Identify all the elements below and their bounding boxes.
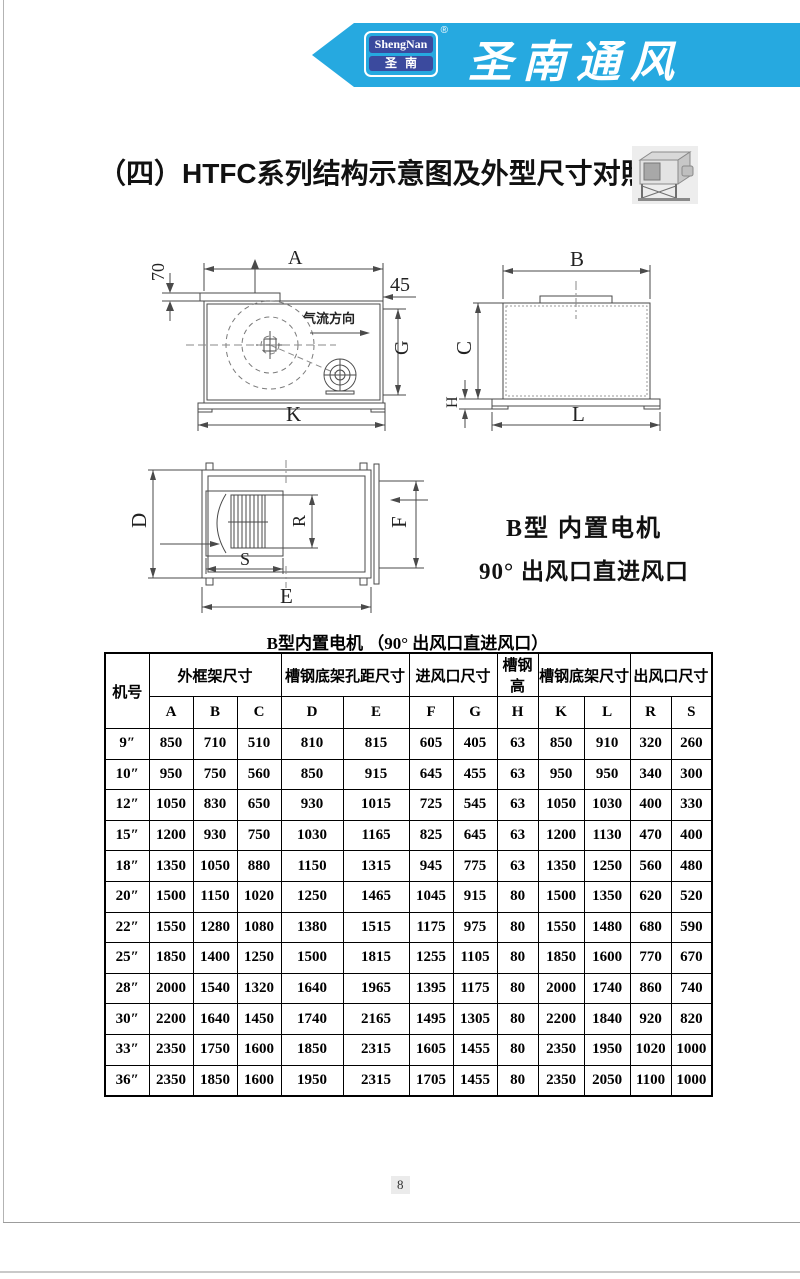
dimension-cell: 1815	[343, 943, 409, 974]
diagram-front-view: B C H L	[445, 235, 745, 440]
dimension-cell: 930	[193, 820, 237, 851]
dimension-cell: 1500	[538, 881, 584, 912]
dimension-cell: 545	[453, 790, 497, 821]
diagram-plan-view: R S D F E	[128, 438, 448, 633]
brand-name: 圣南通风	[468, 26, 788, 90]
page-border-bottom	[3, 1222, 800, 1223]
dimension-cell: 80	[497, 1004, 538, 1035]
letter-header: D	[281, 697, 343, 729]
letter-header: K	[538, 697, 584, 729]
dimension-cell: 510	[237, 729, 281, 760]
table-row: 33″2350175016001850231516051455802350195…	[105, 1034, 712, 1065]
table-row: 28″2000154013201640196513951175802000174…	[105, 973, 712, 1004]
dimension-cell: 80	[497, 973, 538, 1004]
dimension-cell: 1950	[281, 1065, 343, 1096]
dimension-cell: 950	[149, 759, 193, 790]
letter-header: L	[584, 697, 630, 729]
dim-label-c: C	[452, 341, 476, 355]
dimension-cell: 63	[497, 851, 538, 882]
dimension-cell: 400	[630, 790, 671, 821]
machine-size-cell: 22″	[105, 912, 149, 943]
machine-size-cell: 20″	[105, 881, 149, 912]
dimension-cell: 455	[453, 759, 497, 790]
letter-header: E	[343, 697, 409, 729]
dim-label-r: R	[289, 515, 309, 527]
group-header-base-holes: 槽钢底架孔距尺寸	[281, 653, 409, 697]
letter-header: R	[630, 697, 671, 729]
dimension-cell: 1640	[193, 1004, 237, 1035]
dimension-cell: 1200	[149, 820, 193, 851]
table-row: 10″95075056085091564545563950950340300	[105, 759, 712, 790]
dimension-cell: 1050	[538, 790, 584, 821]
dimension-cell: 1255	[409, 943, 453, 974]
dimension-cell: 63	[497, 759, 538, 790]
dim-label-d: D	[128, 513, 151, 528]
dimension-cell: 1175	[409, 912, 453, 943]
dimension-cell: 1515	[343, 912, 409, 943]
dimension-cell: 1950	[584, 1034, 630, 1065]
dimension-cell: 950	[584, 759, 630, 790]
dimension-cell: 63	[497, 820, 538, 851]
letter-header: B	[193, 697, 237, 729]
dimension-cell: 1050	[193, 851, 237, 882]
dimension-cell: 2315	[343, 1065, 409, 1096]
dimension-cell: 2350	[149, 1065, 193, 1096]
machine-size-cell: 15″	[105, 820, 149, 851]
dim-label-h: H	[445, 396, 461, 408]
dimension-cell: 880	[237, 851, 281, 882]
dimension-cell: 2315	[343, 1034, 409, 1065]
dimension-cell: 320	[630, 729, 671, 760]
airflow-label: 气流方向	[303, 311, 355, 326]
dimension-cell: 470	[630, 820, 671, 851]
dimension-cell: 1395	[409, 973, 453, 1004]
dimension-cell: 1175	[453, 973, 497, 1004]
brand-logo: ShengNan 圣南 ®	[364, 31, 438, 77]
dimension-cell: 330	[671, 790, 712, 821]
dimension-cell: 620	[630, 881, 671, 912]
dimension-cell: 2165	[343, 1004, 409, 1035]
dim-label-g: G	[391, 341, 413, 355]
page-border-left	[3, 0, 4, 1222]
dim-label-e: E	[280, 584, 293, 608]
dimension-cell: 1600	[584, 943, 630, 974]
dimension-cell: 1455	[453, 1065, 497, 1096]
group-header-frame: 外框架尺寸	[149, 653, 281, 697]
machine-size-cell: 18″	[105, 851, 149, 882]
dimension-cell: 2350	[538, 1034, 584, 1065]
dimension-cell: 1600	[237, 1065, 281, 1096]
dimension-cell: 740	[671, 973, 712, 1004]
dimension-cell: 1600	[237, 1034, 281, 1065]
dimension-cell: 560	[237, 759, 281, 790]
dimension-cell: 1550	[538, 912, 584, 943]
dimension-cell: 725	[409, 790, 453, 821]
table-row: 15″1200930750103011658256456312001130470…	[105, 820, 712, 851]
dimension-cell: 1850	[149, 943, 193, 974]
dimension-cell: 1050	[149, 790, 193, 821]
table-body: 9″8507105108108156054056385091032026010″…	[105, 729, 712, 1096]
dimension-cell: 915	[453, 881, 497, 912]
dim-label-l: L	[572, 402, 585, 426]
dimension-cell: 820	[671, 1004, 712, 1035]
machine-size-cell: 28″	[105, 973, 149, 1004]
machine-size-cell: 25″	[105, 943, 149, 974]
machine-size-cell: 10″	[105, 759, 149, 790]
dimension-cell: 850	[281, 759, 343, 790]
dimension-cell: 825	[409, 820, 453, 851]
dimension-cell: 300	[671, 759, 712, 790]
dimension-cell: 830	[193, 790, 237, 821]
dimension-cell: 1500	[281, 943, 343, 974]
dimension-cell: 645	[409, 759, 453, 790]
dimension-cell: 400	[671, 820, 712, 851]
dimension-cell: 80	[497, 943, 538, 974]
dimension-cell: 560	[630, 851, 671, 882]
dimension-cell: 1740	[281, 1004, 343, 1035]
dimension-cell: 1280	[193, 912, 237, 943]
dimension-cell: 605	[409, 729, 453, 760]
letter-header: C	[237, 697, 281, 729]
dimension-cell: 1150	[281, 851, 343, 882]
dimension-cell: 340	[630, 759, 671, 790]
dimension-cell: 1045	[409, 881, 453, 912]
dim-label-b: B	[570, 247, 584, 271]
dimension-cell: 1605	[409, 1034, 453, 1065]
group-header-inlet: 进风口尺寸	[409, 653, 497, 697]
letter-header-row: A B C D E F G H K L R S	[105, 697, 712, 729]
dimension-cell: 945	[409, 851, 453, 882]
diagram-side-view: A 70 45 G K 气流方向	[140, 235, 450, 440]
dimension-cell: 1305	[453, 1004, 497, 1035]
dimension-cell: 1315	[343, 851, 409, 882]
dimension-cell: 1000	[671, 1065, 712, 1096]
dimension-cell: 1200	[538, 820, 584, 851]
dimension-cell: 810	[281, 729, 343, 760]
dimension-cell: 1250	[237, 943, 281, 974]
dimension-cell: 1350	[538, 851, 584, 882]
table-row: 9″85071051081081560540563850910320260	[105, 729, 712, 760]
dimension-cell: 920	[630, 1004, 671, 1035]
dimension-cell: 80	[497, 881, 538, 912]
dimension-table: 机号 外框架尺寸 槽钢底架孔距尺寸 进风口尺寸 槽钢高 槽钢底架尺寸 出风口尺寸…	[104, 652, 713, 1097]
dimension-cell: 1850	[281, 1034, 343, 1065]
dimension-cell: 860	[630, 973, 671, 1004]
dimension-cell: 1480	[584, 912, 630, 943]
letter-header: A	[149, 697, 193, 729]
dim-label-f: F	[387, 516, 411, 528]
logo-text-bottom: 圣南	[369, 56, 433, 71]
dimension-cell: 1030	[281, 820, 343, 851]
dimension-cell: 80	[497, 1034, 538, 1065]
dimension-cell: 590	[671, 912, 712, 943]
dimension-cell: 2000	[538, 973, 584, 1004]
table-row: 25″1850140012501500181512551105801850160…	[105, 943, 712, 974]
dimension-cell: 1400	[193, 943, 237, 974]
dimension-cell: 405	[453, 729, 497, 760]
dimension-cell: 750	[237, 820, 281, 851]
dimension-cell: 1495	[409, 1004, 453, 1035]
type-note-line2: 90° 出风口直进风口	[450, 552, 718, 586]
dimension-cell: 680	[630, 912, 671, 943]
product-thumbnail	[632, 146, 698, 204]
dimension-cell: 910	[584, 729, 630, 760]
dimension-cell: 1850	[193, 1065, 237, 1096]
footer-rule	[0, 1271, 800, 1273]
dimension-cell: 1165	[343, 820, 409, 851]
dimension-cell: 1500	[149, 881, 193, 912]
dimension-cell: 1020	[237, 881, 281, 912]
dimension-cell: 645	[453, 820, 497, 851]
dimension-cell: 815	[343, 729, 409, 760]
dim-label-70: 70	[148, 263, 168, 281]
dimension-cell: 1540	[193, 973, 237, 1004]
dimension-cell: 480	[671, 851, 712, 882]
dimension-cell: 2200	[538, 1004, 584, 1035]
dimension-cell: 1105	[453, 943, 497, 974]
dimension-cell: 950	[538, 759, 584, 790]
dimension-cell: 1550	[149, 912, 193, 943]
table-row: 18″1350105088011501315945775631350125056…	[105, 851, 712, 882]
dimension-cell: 1840	[584, 1004, 630, 1035]
dimension-cell: 1150	[193, 881, 237, 912]
machine-size-cell: 33″	[105, 1034, 149, 1065]
dimension-cell: 1455	[453, 1034, 497, 1065]
dimension-cell: 2000	[149, 973, 193, 1004]
dimension-cell: 1465	[343, 881, 409, 912]
table-title: B型内置电机 （90° 出风口直进风口）	[104, 629, 711, 654]
dimension-cell: 1100	[630, 1065, 671, 1096]
dimension-cell: 2200	[149, 1004, 193, 1035]
dimension-cell: 1350	[149, 851, 193, 882]
dimension-cell: 63	[497, 790, 538, 821]
dimension-cell: 1015	[343, 790, 409, 821]
dimension-cell: 1640	[281, 973, 343, 1004]
dimension-cell: 1320	[237, 973, 281, 1004]
dimension-cell: 930	[281, 790, 343, 821]
table-row: 20″1500115010201250146510459158015001350…	[105, 881, 712, 912]
dimension-cell: 260	[671, 729, 712, 760]
group-header-channel-height: 槽钢高	[497, 653, 538, 697]
letter-header: F	[409, 697, 453, 729]
dimension-cell: 770	[630, 943, 671, 974]
dimension-cell: 1750	[193, 1034, 237, 1065]
dim-label-s: S	[240, 549, 250, 569]
table-row: 12″1050830650930101572554563105010304003…	[105, 790, 712, 821]
dimension-cell: 850	[149, 729, 193, 760]
dimension-cell: 2050	[584, 1065, 630, 1096]
dimension-cell: 750	[193, 759, 237, 790]
machine-col-header: 机号	[105, 653, 149, 729]
logo-text-top: ShengNan	[369, 36, 433, 53]
machine-size-cell: 36″	[105, 1065, 149, 1096]
table-row: 36″2350185016001950231517051455802350205…	[105, 1065, 712, 1096]
section-title: （四）HTFC系列结构示意图及外型尺寸对照表	[98, 152, 643, 192]
dimension-cell: 1080	[237, 912, 281, 943]
dimension-cell: 1250	[281, 881, 343, 912]
machine-size-cell: 12″	[105, 790, 149, 821]
dimension-cell: 1740	[584, 973, 630, 1004]
dimension-cell: 775	[453, 851, 497, 882]
dimension-cell: 1030	[584, 790, 630, 821]
group-header-base: 槽钢底架尺寸	[538, 653, 630, 697]
dim-label-45: 45	[390, 274, 410, 296]
dimension-cell: 1850	[538, 943, 584, 974]
dimension-cell: 710	[193, 729, 237, 760]
group-header-row: 机号 外框架尺寸 槽钢底架孔距尺寸 进风口尺寸 槽钢高 槽钢底架尺寸 出风口尺寸	[105, 653, 712, 697]
dimension-cell: 1380	[281, 912, 343, 943]
dimension-cell: 2350	[538, 1065, 584, 1096]
machine-size-cell: 9″	[105, 729, 149, 760]
dimension-cell: 850	[538, 729, 584, 760]
dimension-cell: 1130	[584, 820, 630, 851]
dim-label-k: K	[286, 402, 301, 426]
dimension-cell: 80	[497, 912, 538, 943]
type-note-line1: B型 内置电机	[450, 508, 718, 543]
dimension-cell: 1000	[671, 1034, 712, 1065]
dim-label-a: A	[288, 247, 303, 269]
machine-size-cell: 30″	[105, 1004, 149, 1035]
dimension-cell: 2350	[149, 1034, 193, 1065]
dimension-cell: 63	[497, 729, 538, 760]
letter-header: H	[497, 697, 538, 729]
dimension-cell: 915	[343, 759, 409, 790]
group-header-outlet: 出风口尺寸	[630, 653, 712, 697]
table-row: 30″2200164014501740216514951305802200184…	[105, 1004, 712, 1035]
page-number: 8	[391, 1176, 410, 1194]
table-header: 机号 外框架尺寸 槽钢底架孔距尺寸 进风口尺寸 槽钢高 槽钢底架尺寸 出风口尺寸…	[105, 653, 712, 729]
page: ShengNan 圣南 ® 圣南通风 （四）HTFC系列结构示意图及外型尺寸对照…	[0, 0, 800, 1279]
dimension-cell: 520	[671, 881, 712, 912]
dimension-cell: 1965	[343, 973, 409, 1004]
letter-header: G	[453, 697, 497, 729]
table-row: 22″1550128010801380151511759758015501480…	[105, 912, 712, 943]
dimension-cell: 80	[497, 1065, 538, 1096]
letter-header: S	[671, 697, 712, 729]
dimension-cell: 1350	[584, 881, 630, 912]
dimension-cell: 975	[453, 912, 497, 943]
dimension-cell: 650	[237, 790, 281, 821]
dimension-cell: 670	[671, 943, 712, 974]
dimension-cell: 1705	[409, 1065, 453, 1096]
type-note: B型 内置电机 90° 出风口直进风口	[450, 508, 718, 586]
dimension-cell: 1250	[584, 851, 630, 882]
dimension-cell: 1020	[630, 1034, 671, 1065]
dimension-cell: 1450	[237, 1004, 281, 1035]
registered-mark: ®	[441, 25, 448, 36]
